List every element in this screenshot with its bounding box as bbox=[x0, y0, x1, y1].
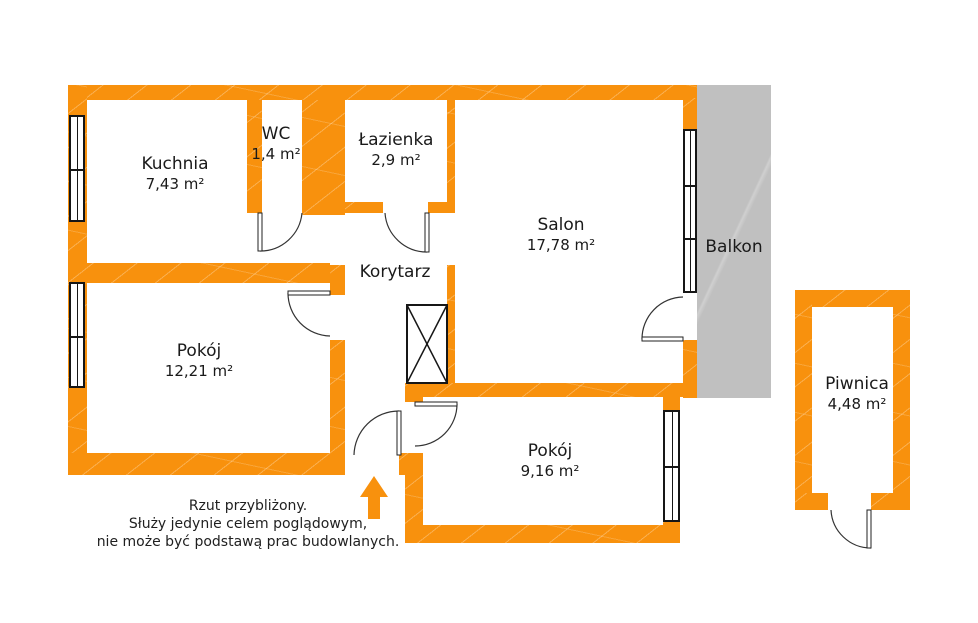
disclaimer-line-3: nie może być podstawą prac budowlanych. bbox=[88, 533, 408, 551]
disclaimer-line-1: Rzut przybliżony. bbox=[88, 497, 408, 515]
disclaimer-text: Rzut przybliżony. Służy jedynie celem po… bbox=[88, 497, 408, 551]
disclaimer-line-2: Służy jedynie celem poglądowym, bbox=[88, 515, 408, 533]
floor-plan-canvas: Balkon Kuchnia7,43 m²WC1,4 m²Łazienka2,9… bbox=[0, 0, 978, 623]
